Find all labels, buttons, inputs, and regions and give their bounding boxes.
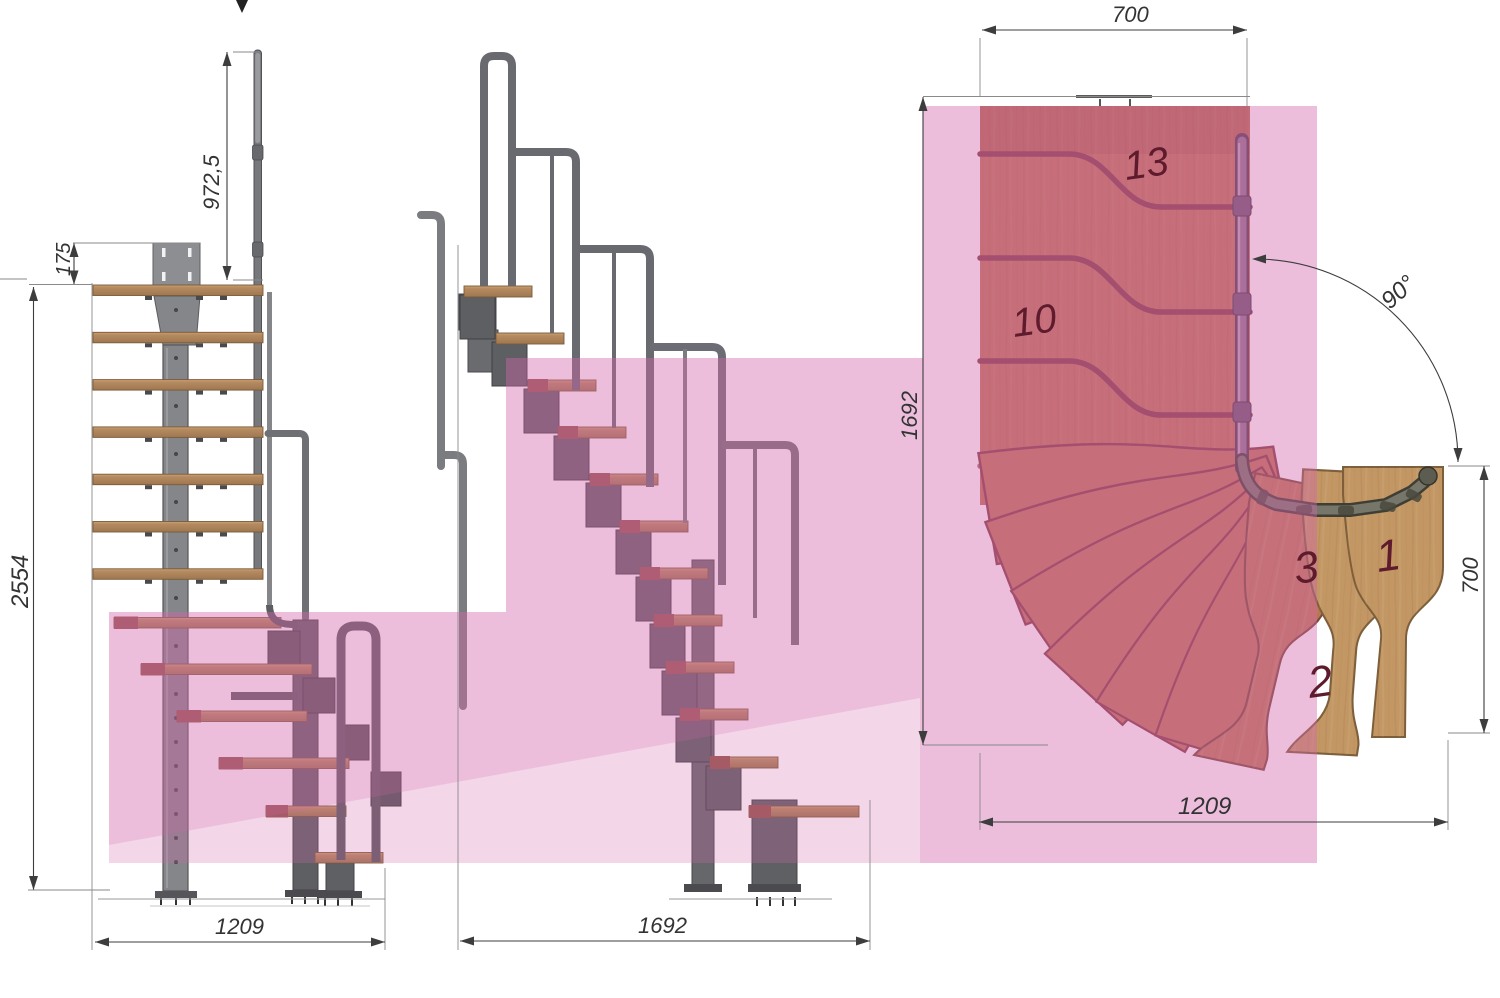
- svg-text:10: 10: [1009, 296, 1059, 346]
- svg-text:1692: 1692: [638, 913, 687, 938]
- svg-text:1692: 1692: [897, 391, 922, 440]
- svg-text:1209: 1209: [215, 914, 264, 939]
- svg-text:700: 700: [1112, 2, 1149, 27]
- svg-text:2554: 2554: [7, 555, 34, 609]
- svg-text:700: 700: [1458, 557, 1483, 594]
- svg-text:90°: 90°: [1376, 270, 1421, 315]
- svg-text:13: 13: [1121, 139, 1171, 189]
- svg-text:1209: 1209: [1178, 793, 1231, 820]
- svg-text:972,5: 972,5: [199, 154, 224, 210]
- svg-text:175: 175: [53, 242, 75, 276]
